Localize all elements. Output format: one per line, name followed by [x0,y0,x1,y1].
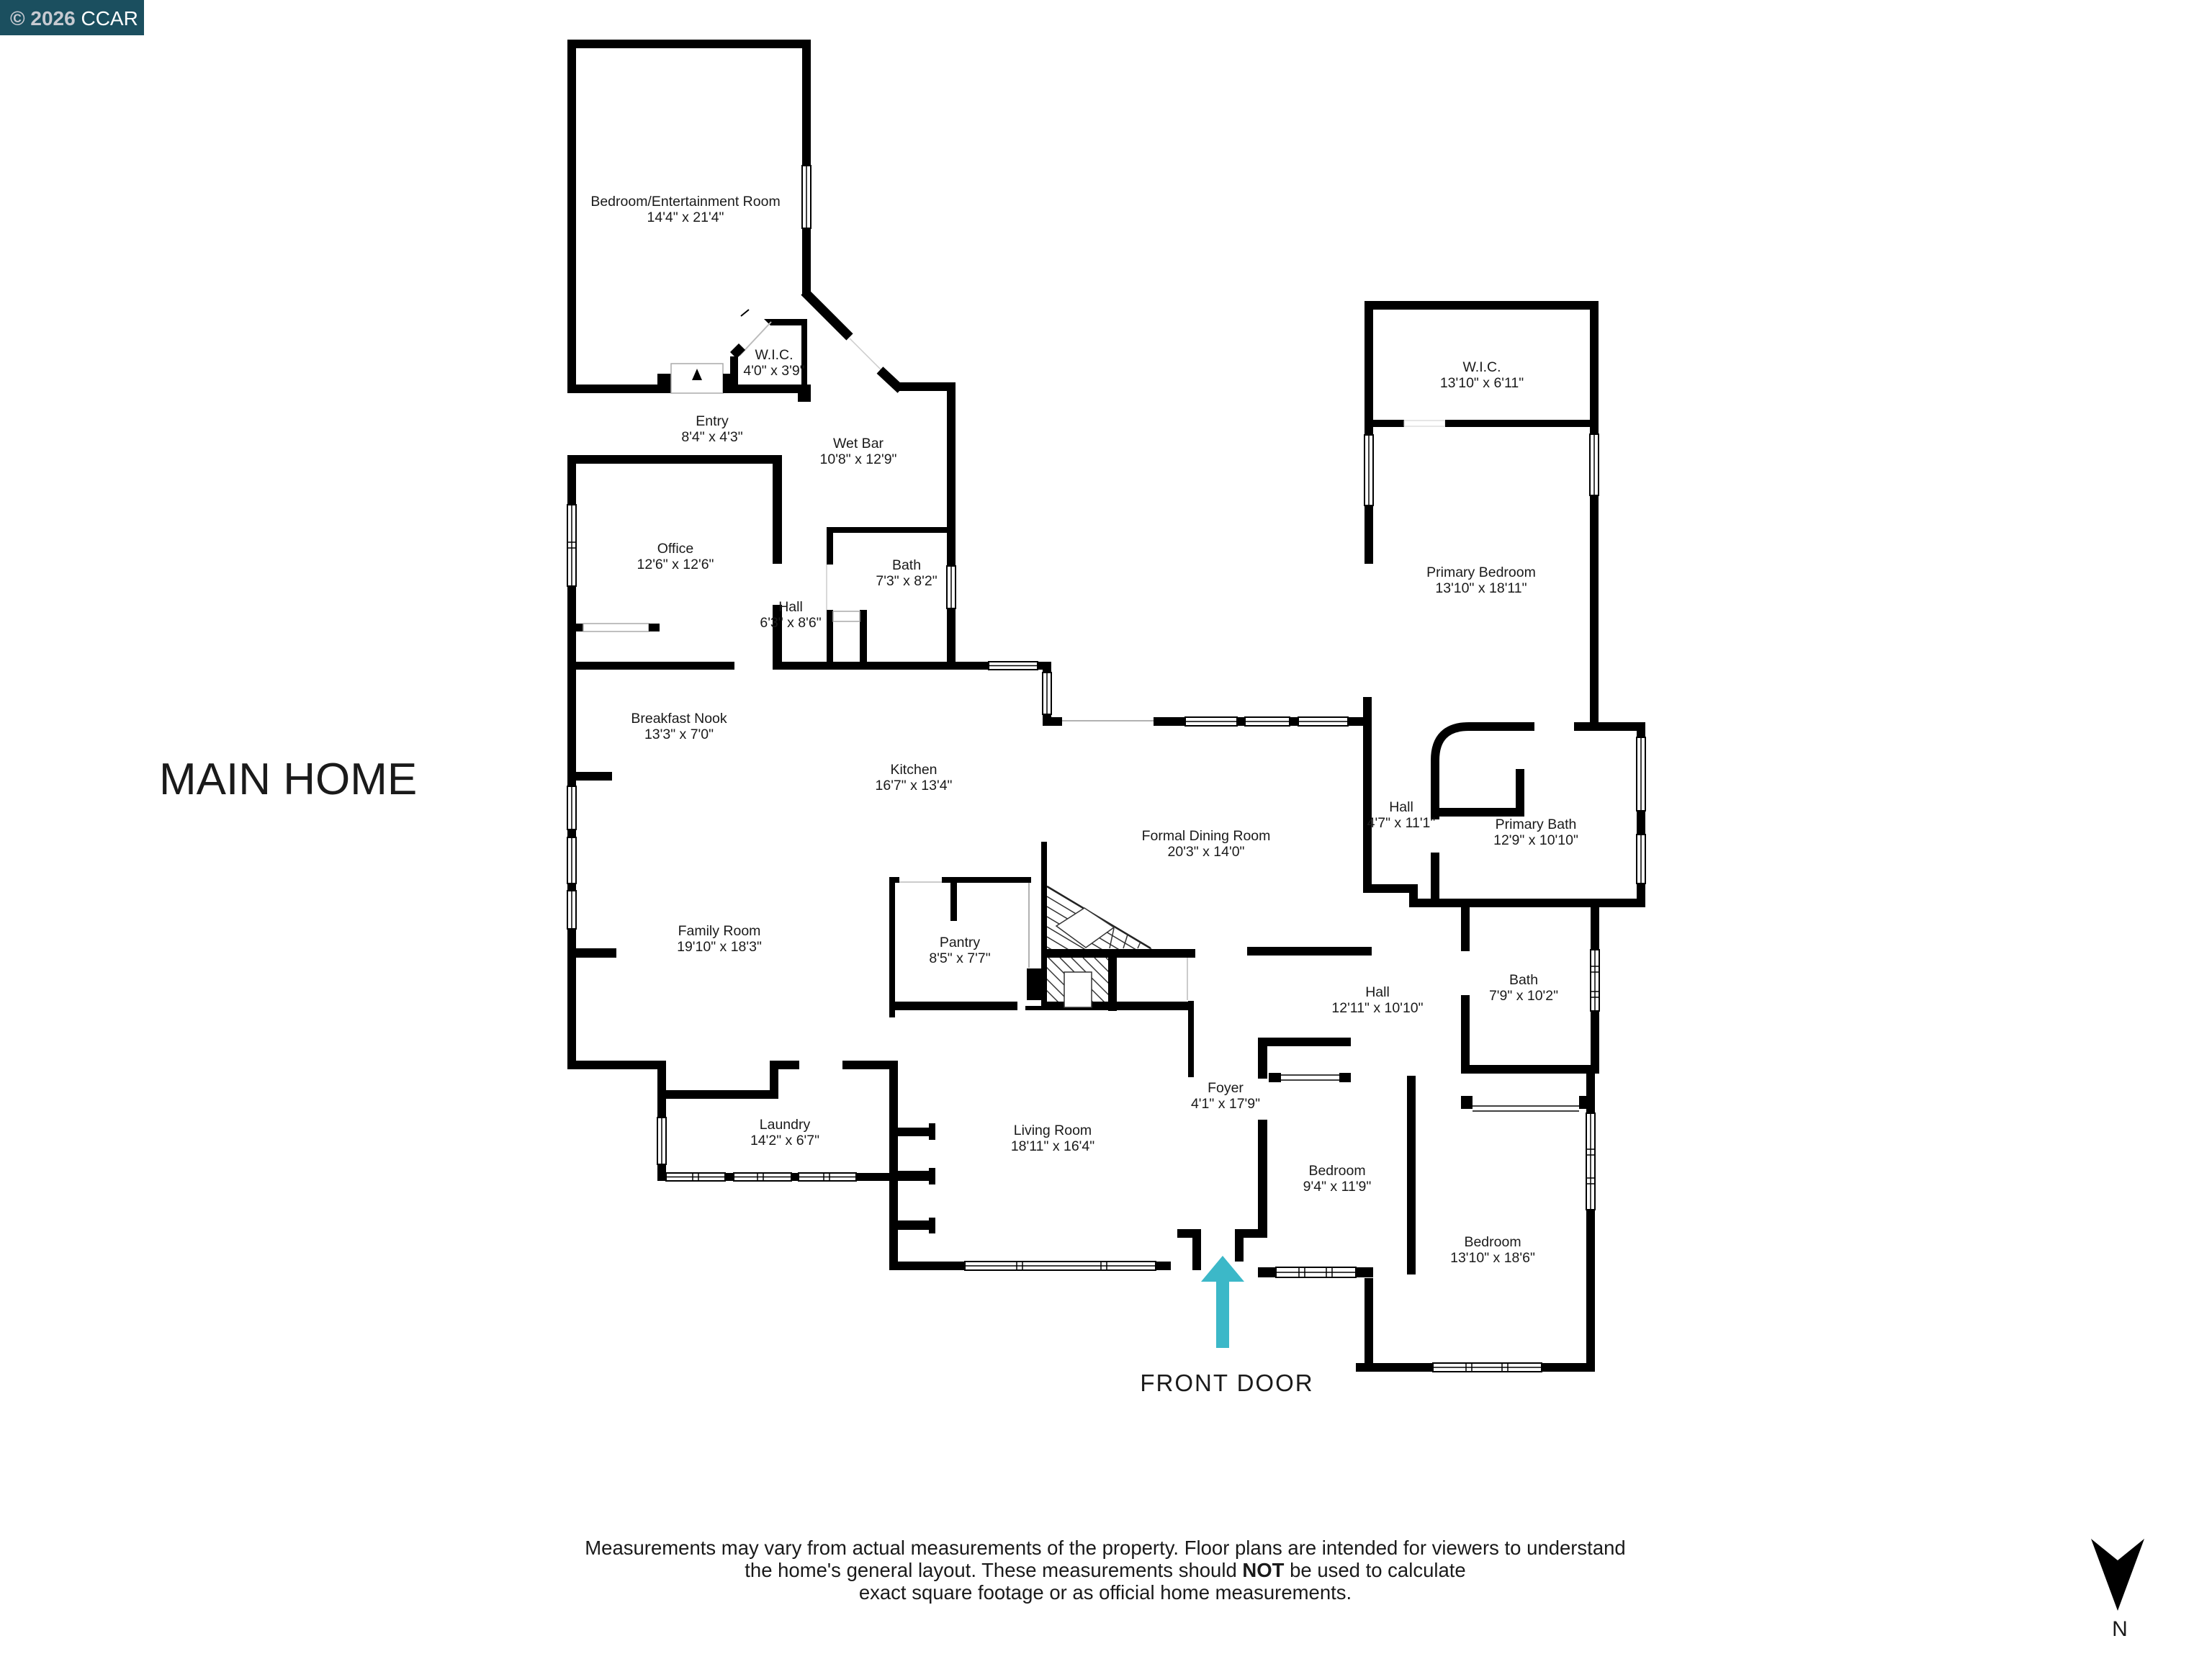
svg-text:N: N [2112,1617,2128,1641]
svg-text:Bedroom: Bedroom [1308,1163,1365,1179]
svg-text:13'10" x 6'11": 13'10" x 6'11" [1440,375,1524,391]
svg-text:Bedroom/Entertainment Room: Bedroom/Entertainment Room [590,194,780,210]
svg-text:13'3" x 7'0": 13'3" x 7'0" [644,727,714,742]
svg-text:12'9" x 10'10": 12'9" x 10'10" [1493,832,1578,848]
svg-text:Entry: Entry [696,413,729,429]
svg-text:4'7" x 11'1": 4'7" x 11'1" [1367,815,1436,831]
svg-text:MAIN HOME: MAIN HOME [159,755,417,804]
svg-text:8'4" x 4'3": 8'4" x 4'3" [681,429,742,445]
svg-text:the home's general layout. Th: the home's general layout. These measure… [745,1559,1465,1581]
svg-text:19'10" x 18'3": 19'10" x 18'3" [677,939,762,955]
svg-text:7'3" x 8'2": 7'3" x 8'2" [876,573,937,589]
svg-text:Laundry: Laundry [760,1117,811,1133]
svg-text:Hall: Hall [1389,799,1413,815]
svg-text:exact square footage or as off: exact square footage or as official home… [859,1581,1352,1604]
svg-text:W.I.C.: W.I.C. [1462,359,1501,375]
svg-text:10'8" x 12'9": 10'8" x 12'9" [820,451,897,467]
svg-text:Hall: Hall [1365,984,1390,1000]
svg-text:16'7" x 13'4": 16'7" x 13'4" [876,778,953,793]
svg-text:12'11" x 10'10": 12'11" x 10'10" [1331,1000,1423,1016]
svg-text:Bedroom: Bedroom [1464,1234,1521,1250]
svg-text:W.I.C.: W.I.C. [755,347,793,363]
svg-text:Bath: Bath [1509,972,1538,988]
svg-text:Family Room: Family Room [678,923,761,939]
svg-text:Formal Dining Room: Formal Dining Room [1142,828,1271,844]
svg-text:6'3" x 8'6": 6'3" x 8'6" [760,615,821,631]
svg-text:Breakfast Nook: Breakfast Nook [631,711,727,727]
svg-text:Pantry: Pantry [940,935,981,950]
svg-text:Hall: Hall [778,599,803,615]
svg-text:Primary Bath: Primary Bath [1496,817,1577,832]
svg-text:Wet Bar: Wet Bar [833,436,884,451]
svg-text:Bath: Bath [892,557,921,573]
svg-text:Office: Office [657,541,694,557]
svg-text:4'0" x 3'9": 4'0" x 3'9" [743,363,804,379]
svg-text:14'4" x 21'4": 14'4" x 21'4" [647,210,724,225]
svg-text:14'2" x 6'7": 14'2" x 6'7" [750,1133,819,1148]
svg-text:© 2026 CCAR: © 2026 CCAR [10,7,138,30]
svg-text:12'6" x 12'6": 12'6" x 12'6" [637,557,714,572]
svg-text:9'4" x 11'9": 9'4" x 11'9" [1303,1179,1372,1195]
svg-text:Kitchen: Kitchen [890,762,937,778]
svg-text:Foyer: Foyer [1208,1080,1244,1096]
svg-text:Living Room: Living Room [1014,1123,1092,1138]
svg-text:13'10" x 18'11": 13'10" x 18'11" [1435,580,1527,596]
svg-text:Measurements may vary from act: Measurements may vary from actual measur… [585,1537,1625,1559]
svg-text:Primary Bedroom: Primary Bedroom [1426,565,1536,580]
svg-text:20'3" x 14'0": 20'3" x 14'0" [1168,844,1245,860]
svg-text:13'10" x 18'6": 13'10" x 18'6" [1450,1250,1535,1266]
svg-text:18'11" x 16'4": 18'11" x 16'4" [1011,1138,1094,1154]
svg-text:7'9" x 10'2": 7'9" x 10'2" [1489,988,1558,1004]
svg-text:4'1" x 17'9": 4'1" x 17'9" [1191,1096,1260,1112]
svg-text:8'5" x 7'7": 8'5" x 7'7" [929,950,990,966]
svg-text:FRONT DOOR: FRONT DOOR [1140,1370,1313,1396]
